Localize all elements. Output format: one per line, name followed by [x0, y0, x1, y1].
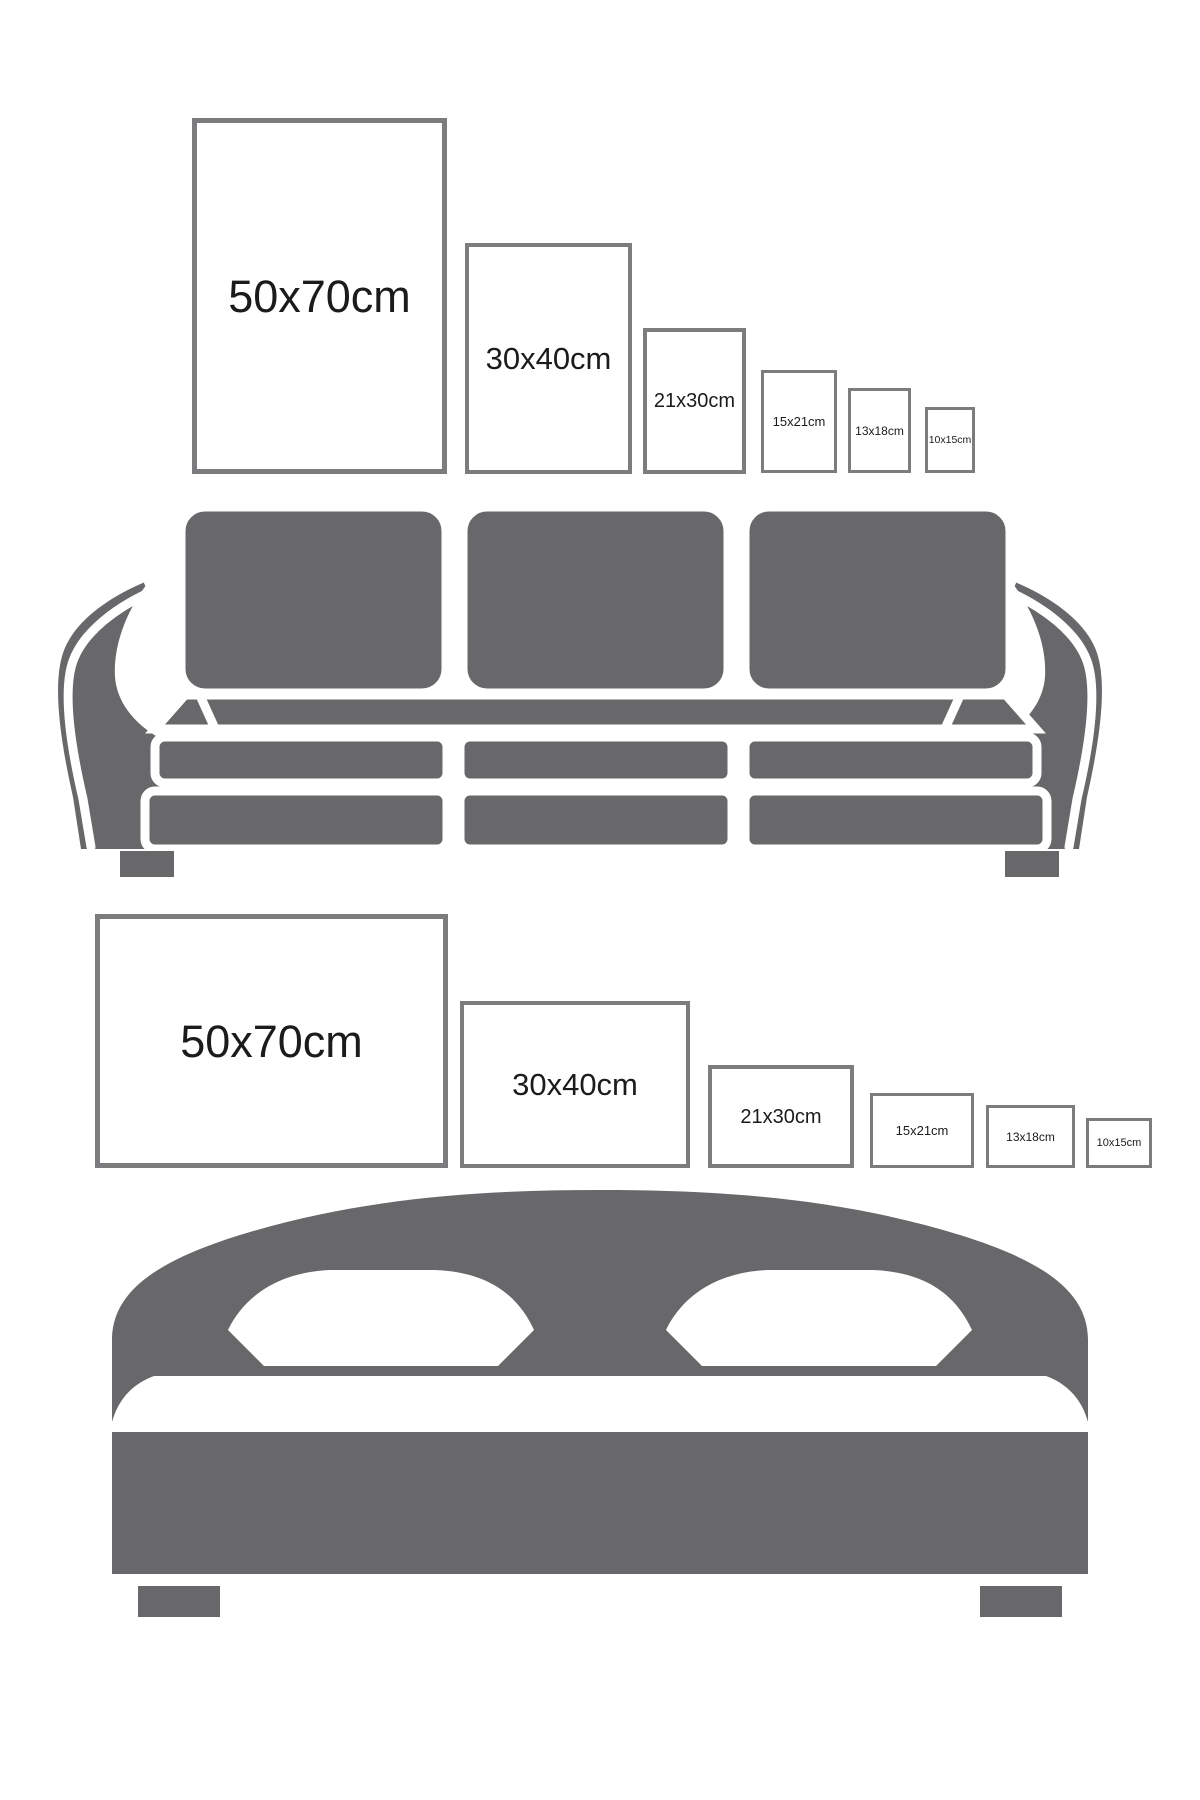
sofa-seat-cushion — [155, 737, 447, 783]
frame-21x30-landscape: 21x30cm — [708, 1065, 854, 1168]
frame-size-label: 30x40cm — [512, 1069, 638, 1100]
bed-left-foot — [138, 1586, 220, 1617]
sofa-left-leg — [120, 851, 174, 877]
frame-size-label: 10x15cm — [1097, 1138, 1142, 1149]
frame-15x21-landscape: 15x21cm — [870, 1093, 974, 1168]
frame-size-label: 15x21cm — [773, 415, 826, 428]
bed-base — [112, 1432, 1088, 1574]
frame-13x18-portrait: 13x18cm — [848, 388, 911, 473]
sofa-right-leg — [1005, 851, 1059, 877]
sofa-seat-cushion — [460, 737, 732, 783]
frame-10x15-portrait: 10x15cm — [925, 407, 975, 473]
frame-size-label: 15x21cm — [896, 1124, 949, 1137]
frame-21x30-portrait: 21x30cm — [643, 328, 746, 474]
frame-size-label: 21x30cm — [654, 391, 735, 411]
sofa-seat-deck — [155, 695, 1036, 729]
frame-size-label: 30x40cm — [486, 343, 612, 374]
bed-right-foot — [980, 1586, 1062, 1617]
frame-size-label: 13x18cm — [1006, 1131, 1055, 1143]
frame-10x15-landscape: 10x15cm — [1086, 1118, 1152, 1168]
frame-size-label: 50x70cm — [228, 274, 411, 319]
frame-size-label: 50x70cm — [180, 1019, 363, 1064]
bed-illustration — [100, 1190, 1100, 1630]
frame-size-label: 10x15cm — [929, 435, 972, 446]
bed-headboard-with-pillow-cutouts — [112, 1190, 1088, 1422]
frame-30x40-landscape: 30x40cm — [460, 1001, 690, 1168]
sofa-base-segment — [745, 791, 1047, 849]
sofa-back-cushion — [463, 507, 728, 693]
sofa-base-segment — [145, 791, 447, 849]
sofa-back-cushion — [181, 507, 446, 693]
frame-size-label: 21x30cm — [740, 1107, 821, 1127]
sofa-base-segment — [460, 791, 732, 849]
frame-50x70-landscape: 50x70cm — [95, 914, 448, 1168]
sofa-back-cushion — [745, 507, 1010, 693]
frame-15x21-portrait: 15x21cm — [761, 370, 837, 473]
sofa-seat-cushion — [745, 737, 1037, 783]
frame-50x70-portrait: 50x70cm — [192, 118, 447, 474]
frame-30x40-portrait: 30x40cm — [465, 243, 632, 474]
frame-size-label: 13x18cm — [855, 425, 904, 437]
sofa-illustration — [45, 485, 1115, 877]
frame-13x18-landscape: 13x18cm — [986, 1105, 1075, 1168]
